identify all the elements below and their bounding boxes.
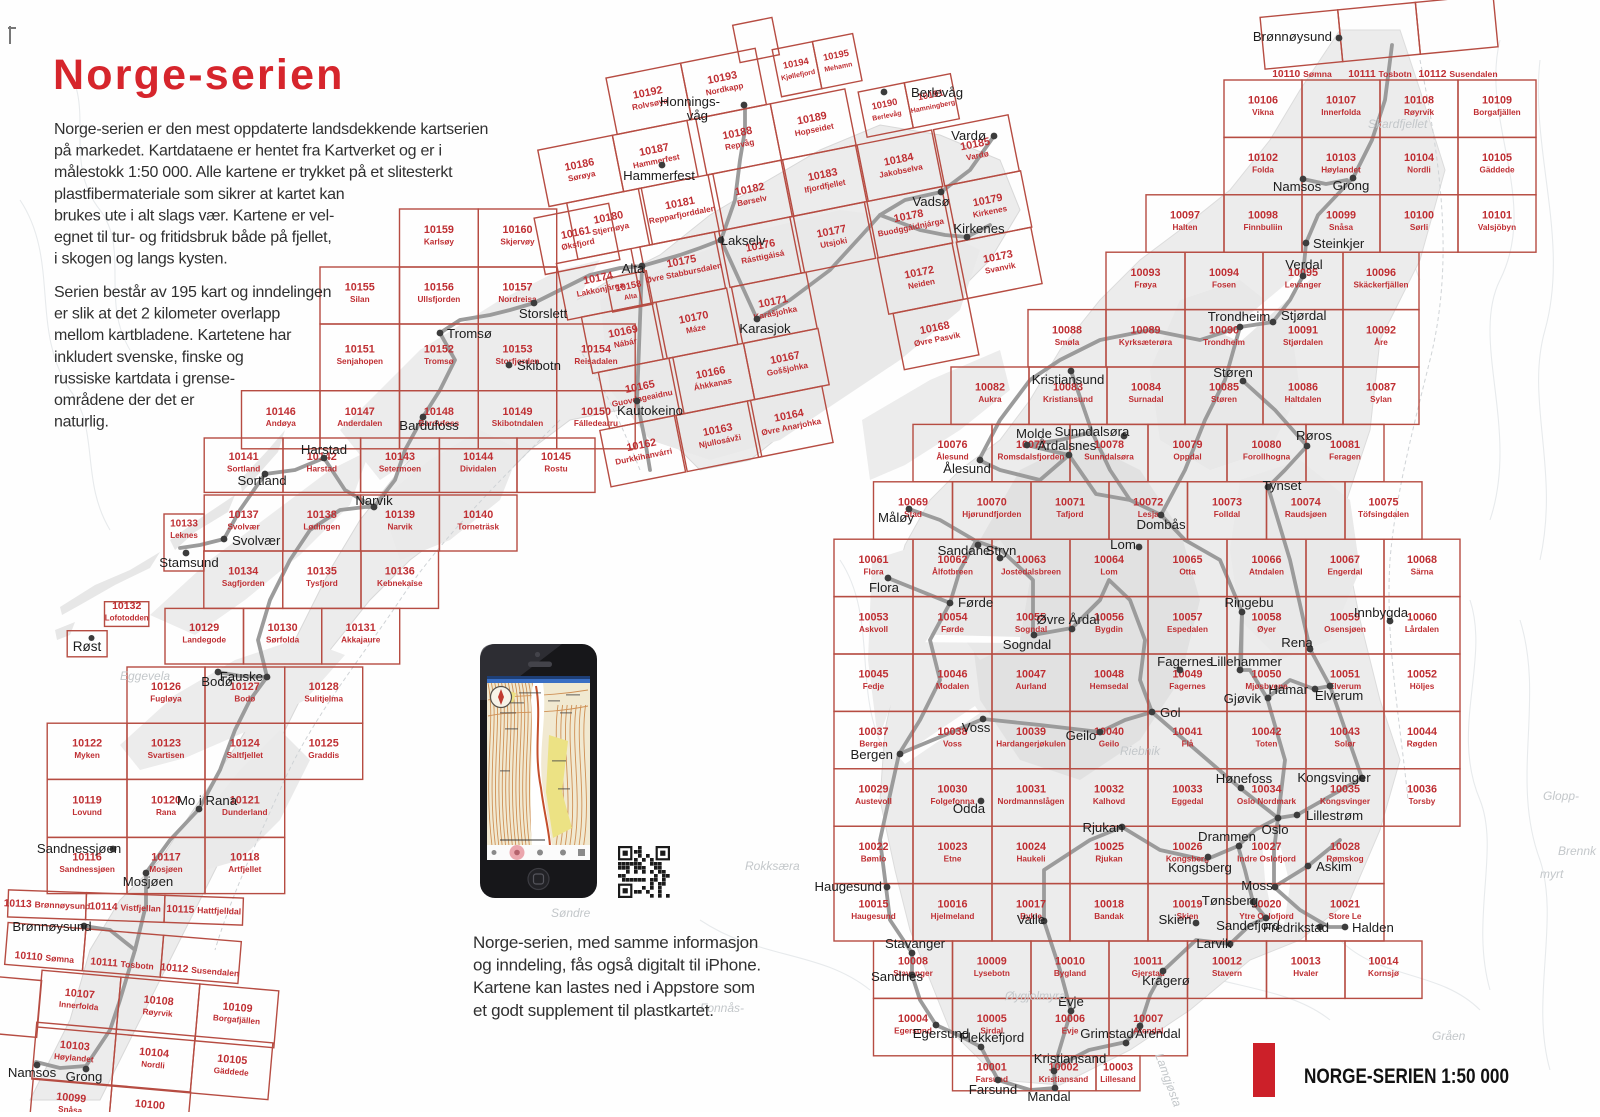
svg-text:10084: 10084 [1131,382,1161,394]
svg-text:Sortland: Sortland [237,473,286,488]
svg-text:10008: 10008 [898,956,928,968]
svg-text:Sandnessjøen: Sandnessjøen [37,841,121,856]
svg-text:Smøla: Smøla [1055,338,1080,347]
svg-text:områdene der det er: områdene der det er [54,391,195,409]
svg-text:10030: 10030 [937,784,967,796]
svg-text:10029: 10029 [858,784,888,796]
svg-text:Farsund: Farsund [969,1082,1017,1097]
svg-text:Lom: Lom [1110,537,1136,552]
svg-text:10069: 10069 [898,497,928,509]
svg-text:på markedet. Kartdataene er he: på markedet. Kartdataene er hentet fra K… [54,142,442,160]
svg-text:Gjøvik: Gjøvik [1224,691,1262,706]
svg-text:Sørfolda: Sørfolda [266,636,300,645]
svg-text:Stavanger: Stavanger [885,936,946,951]
svg-text:Sylan: Sylan [1370,395,1392,404]
svg-text:Rjukan: Rjukan [1095,854,1122,863]
svg-text:Tromsø: Tromsø [424,357,454,366]
svg-text:10017: 10017 [1016,898,1046,910]
svg-text:Hardangerjøkulen: Hardangerjøkulen [996,740,1066,749]
svg-text:Svolvær: Svolvær [227,523,260,532]
svg-text:10159: 10159 [424,224,454,236]
svg-text:10104: 10104 [1404,152,1434,164]
svg-text:10027: 10027 [1251,841,1281,853]
svg-text:Hjørundfjorden: Hjørundfjorden [962,510,1021,519]
svg-text:10076: 10076 [937,439,967,451]
svg-text:10031: 10031 [1016,784,1046,796]
svg-text:10047: 10047 [1016,669,1046,681]
svg-text:Artfjellet: Artfjellet [228,865,261,874]
svg-text:Vardø: Vardø [951,128,986,143]
svg-text:Mo i Rana: Mo i Rana [177,793,238,808]
svg-text:Bodø: Bodø [234,695,255,704]
svg-text:10101: 10101 [1482,210,1512,222]
svg-text:10004: 10004 [898,1013,928,1025]
svg-text:Töfsingdalen: Töfsingdalen [1358,510,1409,519]
svg-text:10118: 10118 [230,852,259,864]
svg-text:Surnadal: Surnadal [1128,395,1163,404]
svg-text:Lillesand: Lillesand [1100,1075,1136,1084]
svg-text:10045: 10045 [858,669,888,681]
svg-text:Snåsa: Snåsa [1329,222,1354,232]
svg-text:Andøya: Andøya [266,419,296,428]
svg-text:10079: 10079 [1172,439,1202,451]
svg-text:Røst: Røst [73,639,102,654]
svg-text:Honnings-: Honnings- [660,94,720,109]
svg-text:Askim: Askim [1316,859,1352,874]
svg-text:Lysebotn: Lysebotn [974,969,1010,978]
svg-text:Feragen: Feragen [1329,453,1361,462]
svg-text:Vadsø: Vadsø [912,194,949,209]
svg-text:10152: 10152 [424,343,454,355]
svg-text:10123: 10123 [151,737,181,749]
svg-text:Nordli: Nordli [1407,166,1431,175]
svg-text:Grong: Grong [1333,178,1370,193]
svg-text:10052: 10052 [1407,669,1437,681]
svg-text:10022: 10022 [858,841,888,853]
svg-text:Etne: Etne [944,854,962,863]
svg-text:10078: 10078 [1094,439,1124,451]
svg-text:Sulitjelma: Sulitjelma [304,695,343,704]
svg-text:Bygland: Bygland [1054,969,1086,978]
svg-text:10103: 10103 [1326,152,1356,164]
svg-text:10075: 10075 [1368,497,1398,509]
svg-text:Mosjøen: Mosjøen [149,865,182,874]
svg-text:brukes ute i alt slags vær. Ka: brukes ute i alt slags vær. Kartene er v… [54,207,334,224]
svg-text:Søndre: Søndre [551,906,591,920]
svg-text:Sandnes: Sandnes [871,969,923,984]
svg-text:Larvik: Larvik [1196,936,1232,951]
svg-text:Oslo Nordmark: Oslo Nordmark [1237,797,1297,806]
svg-text:10099: 10099 [1326,210,1356,222]
svg-text:Lom: Lom [1100,567,1117,576]
svg-text:Tafjord: Tafjord [1056,510,1083,519]
svg-text:Namsos: Namsos [8,1065,57,1080]
svg-text:10014: 10014 [1368,956,1398,968]
svg-text:10035: 10035 [1330,784,1360,796]
svg-text:er slik at det 2 kilometer ove: er slik at det 2 kilometer overlapp [54,306,280,323]
svg-text:10143: 10143 [385,451,415,463]
svg-text:10160: 10160 [502,224,532,236]
svg-text:Frøya: Frøya [1134,280,1157,289]
svg-text:Hjelmeland: Hjelmeland [931,912,975,921]
svg-text:Dombås: Dombås [1136,517,1186,532]
svg-text:Moss: Moss [1241,878,1273,893]
svg-text:10147: 10147 [345,406,375,418]
svg-text:10001: 10001 [977,1061,1007,1073]
svg-text:Folda: Folda [1252,166,1274,175]
svg-text:Stryn: Stryn [986,543,1017,558]
svg-text:og inndeling, fås også digital: og inndeling, fås også digitalt til iPho… [473,956,761,975]
svg-text:Kristiansund: Kristiansund [1032,372,1105,387]
svg-text:Romsdalsfjorden: Romsdalsfjorden [998,453,1065,462]
svg-text:10073: 10073 [1212,497,1242,509]
svg-text:Alta: Alta [622,261,645,276]
svg-text:10028: 10028 [1330,841,1360,853]
svg-text:10074: 10074 [1291,497,1321,509]
svg-text:10057: 10057 [1172,611,1202,623]
svg-text:Kongsberg: Kongsberg [1168,860,1232,875]
svg-text:Høylandet: Høylandet [1321,166,1361,175]
svg-text:10013: 10013 [1291,956,1321,968]
svg-text:Skäckerfjällen: Skäckerfjällen [1353,280,1408,289]
svg-text:Levanger: Levanger [1285,280,1322,289]
svg-text:10156: 10156 [424,282,454,294]
svg-text:Odda: Odda [953,801,986,816]
svg-text:Flå: Flå [1182,739,1194,749]
svg-text:Verdal: Verdal [1285,257,1322,272]
svg-text:Espedalen: Espedalen [1167,625,1208,634]
svg-text:Stamsund: Stamsund [159,555,218,570]
svg-text:10065: 10065 [1172,554,1202,566]
svg-text:10012: 10012 [1212,956,1242,968]
svg-text:Fagernes: Fagernes [1157,654,1213,669]
svg-text:Tønsberg: Tønsberg [1202,893,1258,908]
svg-text:målestokk 1:50 000. Alle karte: målestokk 1:50 000. Alle kartene er tryk… [54,163,453,181]
svg-text:Torsby: Torsby [1409,797,1436,806]
svg-text:Geilo: Geilo [1099,740,1119,749]
svg-text:Øyer: Øyer [1257,625,1276,634]
svg-text:Askvoll: Askvoll [859,625,888,634]
svg-text:Rana: Rana [156,808,176,817]
svg-text:Skjervøy: Skjervøy [500,238,535,247]
svg-text:10088: 10088 [1052,324,1082,336]
svg-text:Indre Oslofjord: Indre Oslofjord [1237,854,1296,863]
svg-text:russiske kartdata i grense-: russiske kartdata i grense- [54,370,235,387]
svg-text:Stjørdalen: Stjørdalen [1283,338,1323,347]
svg-text:10054: 10054 [937,611,967,623]
svg-text:Lofotodden: Lofotodden [105,614,149,623]
svg-text:Hønefoss: Hønefoss [1216,771,1273,786]
svg-text:Lårdalen: Lårdalen [1405,624,1439,634]
svg-text:10007: 10007 [1133,1013,1163,1025]
svg-text:Svolvær: Svolvær [232,533,281,548]
svg-text:Höljes: Höljes [1410,682,1435,691]
svg-text:Storslett: Storslett [519,306,568,321]
svg-text:10153: 10153 [502,343,532,355]
svg-text:10010: 10010 [1055,956,1085,968]
svg-text:10155: 10155 [345,282,375,294]
svg-text:Støren: Støren [1213,365,1253,380]
svg-text:Sandane: Sandane [938,543,991,558]
svg-text:Kebnekaise: Kebnekaise [377,579,423,588]
svg-text:Øvre Årdal: Øvre Årdal [1036,612,1099,627]
svg-text:10106: 10106 [1248,95,1278,107]
svg-text:Ullsfjorden: Ullsfjorden [418,295,461,304]
svg-text:Jostedalsbreen: Jostedalsbreen [1001,567,1061,576]
svg-text:Raudsjøen: Raudsjøen [1285,510,1327,519]
svg-text:10085: 10085 [1209,382,1239,394]
svg-text:10071: 10071 [1055,497,1085,509]
svg-text:naturlig.: naturlig. [54,414,109,431]
svg-text:Haugesund: Haugesund [815,879,882,894]
svg-text:10102: 10102 [1248,152,1278,164]
svg-text:Brønnøysund: Brønnøysund [12,919,91,934]
svg-text:Harstad: Harstad [301,442,347,457]
svg-text:10100: 10100 [1404,210,1434,222]
svg-text:Modalen: Modalen [936,682,969,691]
svg-text:10129: 10129 [189,622,219,634]
svg-text:10070: 10070 [977,497,1007,509]
svg-text:10132: 10132 [112,600,141,612]
svg-text:Fauske: Fauske [220,669,263,684]
svg-text:Kautokeino: Kautokeino [617,403,683,418]
svg-text:Brønnøysund: Brønnøysund [1253,29,1332,44]
svg-text:Voss: Voss [943,740,962,749]
svg-text:10087: 10087 [1366,382,1396,394]
svg-text:10100: 10100 [134,1098,165,1112]
svg-text:10009: 10009 [977,956,1007,968]
svg-text:10134: 10134 [228,566,258,578]
svg-text:Flekkefjord: Flekkefjord [960,1030,1025,1045]
svg-text:Berlevåg: Berlevåg [911,85,963,100]
svg-text:Elverum: Elverum [1315,688,1363,703]
svg-text:10144: 10144 [463,451,493,463]
svg-text:10125: 10125 [309,737,339,749]
svg-text:10119: 10119 [72,794,101,806]
svg-text:Kragerø: Kragerø [1142,973,1190,988]
svg-text:Sagfjorden: Sagfjorden [222,579,265,588]
svg-text:10090: 10090 [1209,324,1239,336]
svg-text:Haugesund: Haugesund [851,912,896,921]
svg-text:Ringebu: Ringebu [1224,595,1273,610]
svg-text:Norge-serien, med samme inform: Norge-serien, med samme informasjon [473,933,758,952]
svg-text:10041: 10041 [1172,726,1202,738]
svg-text:Fosen: Fosen [1212,280,1236,289]
svg-text:10082: 10082 [975,382,1005,394]
svg-text:Brennk: Brennk [1558,844,1597,858]
svg-text:Skibotn: Skibotn [517,358,561,373]
svg-text:Narvik: Narvik [355,493,393,508]
svg-text:myrt: myrt [1540,867,1564,881]
svg-text:Svartisen: Svartisen [148,751,185,760]
svg-text:Fredrikstad: Fredrikstad [1263,920,1329,935]
svg-text:Grong: Grong [66,1069,103,1084]
svg-text:Finnbuliin: Finnbuliin [1243,223,1282,232]
svg-text:Flora: Flora [863,567,883,576]
svg-text:Harstad: Harstad [307,465,338,474]
svg-text:10066: 10066 [1251,554,1281,566]
svg-text:10051: 10051 [1330,669,1360,681]
svg-text:Serien består av 195 kart og i: Serien består av 195 kart og inndelingen [54,283,331,301]
svg-text:Øygjolmyra: Øygjolmyra [1004,989,1066,1003]
svg-text:10060: 10060 [1407,611,1437,623]
svg-text:Folldal: Folldal [1214,510,1240,519]
svg-text:Røyrvik: Røyrvik [1404,108,1434,117]
svg-text:Sørli: Sørli [1410,223,1428,232]
svg-text:Røgden: Røgden [1407,740,1437,749]
svg-text:10043: 10043 [1330,726,1360,738]
svg-text:i skogen og langs kysten.: i skogen og langs kysten. [54,251,227,268]
svg-text:Akkajaure: Akkajaure [341,636,381,645]
svg-text:Hammerfest: Hammerfest [623,168,695,183]
svg-text:Setermoen: Setermoen [379,465,421,474]
svg-text:10005: 10005 [977,1013,1007,1025]
svg-text:Innerfolda: Innerfolda [1321,108,1361,117]
svg-text:Karasjok: Karasjok [739,321,791,336]
svg-text:Lovund: Lovund [72,808,102,817]
svg-text:10108: 10108 [1404,95,1434,107]
svg-text:10094: 10094 [1209,267,1239,279]
svg-text:Gråen: Gråen [1432,1029,1466,1043]
svg-text:Hvaler: Hvaler [1293,969,1319,978]
svg-text:Hamar: Hamar [1268,682,1308,697]
svg-text:10145: 10145 [541,451,571,463]
svg-text:Valle: Valle [1017,912,1045,927]
svg-text:Skien: Skien [1159,912,1192,927]
svg-text:plastfibermateriale som sikrer: plastfibermateriale som sikrer at kartet… [54,186,344,203]
svg-text:10053: 10053 [858,611,888,623]
svg-text:Atndalen: Atndalen [1249,567,1284,576]
svg-text:Kyrksæterøra: Kyrksæterøra [1119,338,1173,347]
svg-text:Austevoll: Austevoll [855,797,892,806]
svg-text:Aurland: Aurland [1016,682,1047,691]
svg-text:Kristiansand: Kristiansand [1034,1051,1107,1066]
svg-text:Leknes: Leknes [170,531,198,540]
svg-text:10072: 10072 [1133,497,1163,509]
svg-text:10024: 10024 [1016,841,1046,853]
svg-text:mellom kartbladene. Kartetene: mellom kartbladene. Kartetene har [54,327,292,344]
svg-text:Voss: Voss [962,720,991,735]
svg-text:Kongsvinger: Kongsvinger [1320,797,1371,806]
svg-text:Stavern: Stavern [1212,969,1242,978]
svg-text:Oslo: Oslo [1261,822,1288,837]
svg-text:10098: 10098 [1248,210,1278,222]
svg-text:Solør: Solør [1335,740,1357,749]
svg-text:Haukeli: Haukeli [1016,854,1045,863]
svg-text:Støren: Støren [1211,395,1237,404]
svg-text:Engerdal: Engerdal [1327,567,1362,576]
svg-text:Kristiansand: Kristiansand [1039,1075,1089,1084]
svg-text:Førde: Førde [958,595,993,610]
svg-text:10117: 10117 [151,852,180,864]
svg-text:10023: 10023 [937,841,967,853]
svg-text:Kornsjø: Kornsjø [1368,969,1399,978]
svg-text:Kalhovd: Kalhovd [1093,797,1125,806]
svg-text:Innbygda: Innbygda [1354,605,1409,620]
svg-text:Bardufoss: Bardufoss [399,418,459,433]
svg-text:Grimstad: Grimstad [1080,1026,1134,1041]
svg-text:10148: 10148 [424,406,454,418]
svg-text:10025: 10025 [1094,841,1124,853]
svg-text:10046: 10046 [937,669,967,681]
svg-text:Anderdalen: Anderdalen [337,419,382,428]
svg-text:Skibotndalen: Skibotndalen [492,419,543,428]
svg-text:Rjukan: Rjukan [1082,820,1123,835]
svg-text:10003: 10003 [1103,1061,1133,1073]
svg-text:10068: 10068 [1407,554,1437,566]
svg-text:Evje: Evje [1062,1027,1079,1036]
svg-text:10154: 10154 [581,343,611,355]
svg-text:Särna: Särna [1411,567,1434,576]
svg-text:10146: 10146 [266,406,296,418]
svg-text:Gol: Gol [1160,705,1181,720]
svg-text:10110 Sømna: 10110 Sømna [1272,69,1332,80]
svg-text:Kristiansund: Kristiansund [1043,395,1093,404]
svg-text:10015: 10015 [858,898,888,910]
svg-text:Forollhogna: Forollhogna [1243,453,1291,462]
svg-text:10044: 10044 [1407,726,1437,738]
svg-text:Geilo: Geilo [1066,728,1097,743]
svg-text:Haltdalen: Haltdalen [1285,395,1322,404]
svg-text:10097: 10097 [1170,210,1200,222]
svg-text:Mosjøen: Mosjøen [123,874,174,889]
svg-text:10033: 10033 [1172,784,1202,796]
svg-text:Norge-serien: Norge-serien [53,51,345,99]
svg-text:Silan: Silan [350,295,370,304]
svg-text:Myken: Myken [74,751,99,760]
svg-text:Stjørdal: Stjørdal [1281,308,1327,323]
svg-text:Årdalsnes: Årdalsnes [1038,438,1097,453]
svg-text:Måløy: Måløy [878,510,914,525]
svg-text:10149: 10149 [502,406,532,418]
svg-text:Bømlo: Bømlo [861,854,886,863]
svg-text:10135: 10135 [307,566,337,578]
svg-text:10141: 10141 [229,451,259,463]
svg-text:Saltfjellet: Saltfjellet [227,751,264,760]
svg-text:NORGE-SERIEN 1:50 000: NORGE-SERIEN 1:50 000 [1304,1064,1509,1088]
svg-text:Førde: Førde [941,625,964,634]
svg-text:inkludert svenske, finske og: inkludert svenske, finske og [54,349,244,366]
svg-text:Sunndalsøra: Sunndalsøra [1084,453,1134,462]
svg-text:10032: 10032 [1094,784,1124,796]
svg-text:Vikna: Vikna [1252,108,1274,117]
svg-text:Fagernes: Fagernes [1169,682,1206,691]
svg-text:10016: 10016 [937,898,967,910]
svg-text:Torneträsk: Torneträsk [457,523,499,532]
svg-text:10136: 10136 [385,566,415,578]
svg-text:10050: 10050 [1251,669,1281,681]
svg-text:Valsjöbyn: Valsjöbyn [1478,223,1516,232]
svg-text:10011: 10011 [1133,956,1162,968]
svg-text:Drammen: Drammen [1198,829,1256,844]
svg-text:10124: 10124 [230,737,260,749]
svg-text:10138: 10138 [307,509,337,521]
svg-text:10064: 10064 [1094,554,1124,566]
svg-text:Sunndalsøra: Sunndalsøra [1055,424,1130,439]
svg-text:Gäddede: Gäddede [1479,166,1514,175]
svg-text:Fálledearru: Fálledearru [574,419,618,428]
svg-text:10058: 10058 [1251,611,1281,623]
svg-text:Aukra: Aukra [978,395,1002,404]
svg-text:10019: 10019 [1172,898,1202,910]
svg-text:Sogndal: Sogndal [1003,637,1051,652]
svg-text:Nordmannslågen: Nordmannslågen [998,796,1065,806]
svg-text:10130: 10130 [268,622,298,634]
svg-text:Rokksæra: Rokksæra [745,859,800,873]
svg-text:Borgafjällen: Borgafjällen [1473,108,1520,117]
svg-text:Lillestrøm: Lillestrøm [1306,808,1363,823]
svg-text:egnet til tur- og fritidsbruk: egnet til tur- og fritidsbruk både på fj… [54,228,332,246]
